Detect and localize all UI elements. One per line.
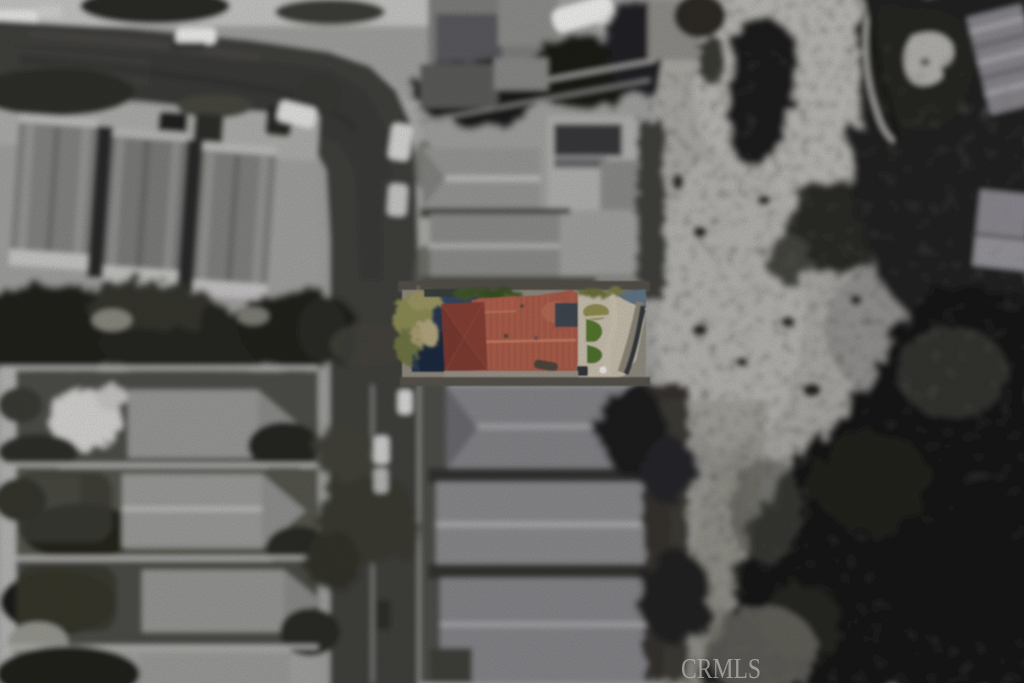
svg-text:CRMLS: CRMLS [681, 653, 761, 683]
